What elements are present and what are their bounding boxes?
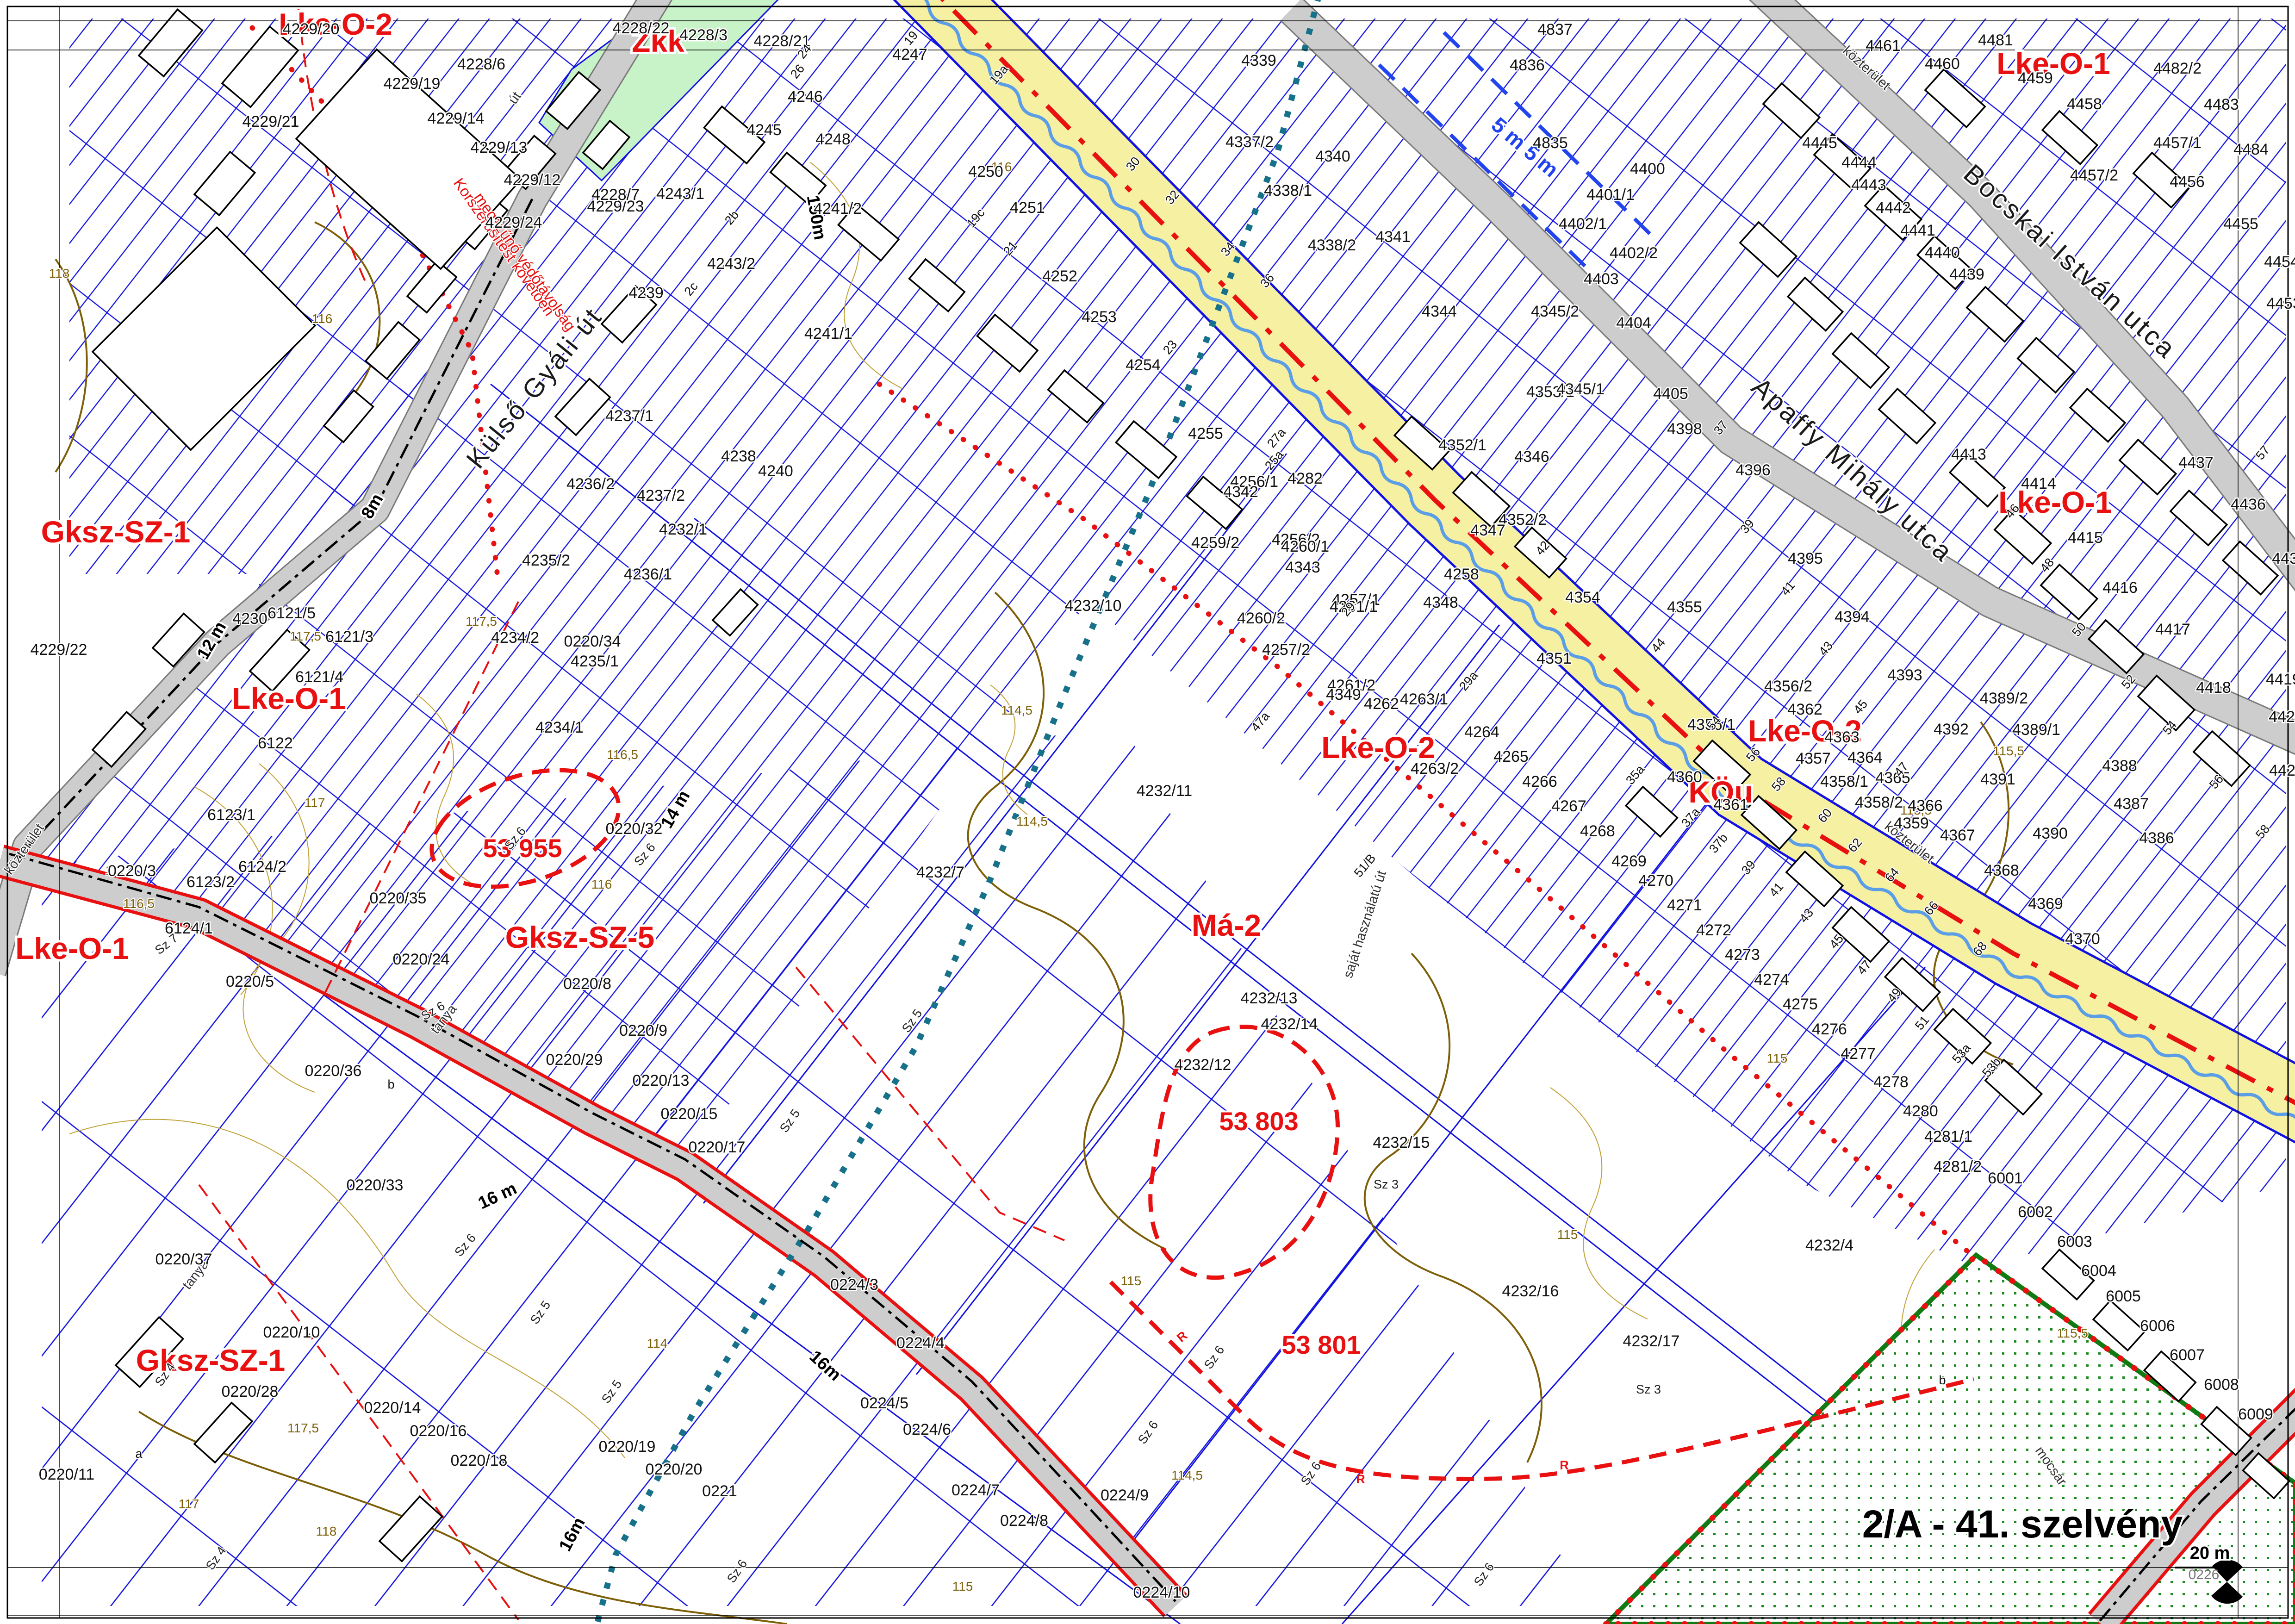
map-label: 116 xyxy=(591,877,612,891)
map-label: 4232/16 xyxy=(1502,1282,1559,1300)
map-label: 6006 xyxy=(2140,1317,2175,1335)
map-label: b xyxy=(1939,1373,1946,1387)
map-label: 0220/14 xyxy=(364,1399,421,1417)
map-label: 4282 xyxy=(1287,470,1323,487)
map-label: 0224/6 xyxy=(903,1421,951,1438)
map-label: 4343 xyxy=(1285,559,1320,576)
map-label: 4349 xyxy=(1326,686,1361,703)
map-label: 0224/9 xyxy=(1101,1487,1149,1504)
map-label: 4338/1 xyxy=(1264,182,1312,199)
map-label: 4419 xyxy=(2266,671,2295,688)
map-label: 4239 xyxy=(628,284,664,302)
map-label: 4405 xyxy=(1653,385,1688,403)
map-label: 0224/8 xyxy=(1000,1512,1048,1530)
map-label: 4439 xyxy=(1949,266,1984,283)
map-label: 4398 xyxy=(1667,420,1702,438)
map-label: R xyxy=(1560,1458,1569,1472)
map-label: 4361 xyxy=(1713,796,1748,814)
map-label: 117,5 xyxy=(290,629,321,643)
map-label: 4234/2 xyxy=(491,629,539,647)
map-label: 4228/22 xyxy=(613,19,670,37)
map-label: 4370 xyxy=(2065,930,2100,948)
map-label: 118 xyxy=(49,266,70,280)
map-label: 4460 xyxy=(1925,55,1960,73)
map-label: 4281/2 xyxy=(1934,1158,1982,1176)
map-label: Sz 3 xyxy=(1374,1177,1399,1191)
map-label: 6002 xyxy=(2018,1203,2053,1221)
map-label: 4352/1 xyxy=(1438,436,1486,454)
map-label: 4484 xyxy=(2233,141,2269,158)
map-label: 4836 xyxy=(1510,56,1545,74)
map-label: Gksz-SZ-5 xyxy=(505,920,655,954)
map-label: 0220/11 xyxy=(39,1466,94,1483)
map-label: 2/A - 41. szelvény xyxy=(1862,1502,2183,1546)
map-label: 4246 xyxy=(788,88,823,106)
map-label: 117 xyxy=(305,796,325,810)
map-label: 4345/2 xyxy=(1531,303,1579,320)
map-label: 4262 xyxy=(1364,695,1399,713)
map-label: 4241/1 xyxy=(804,325,852,342)
map-label: 4482/2 xyxy=(2153,60,2202,77)
map-label: 0224/10 xyxy=(1133,1584,1190,1601)
map-label: 4278 xyxy=(1873,1073,1909,1091)
map-label: 4421 xyxy=(2269,762,2295,779)
map-label: 0220/35 xyxy=(370,890,427,907)
map-label: 4359 xyxy=(1894,815,1929,832)
map-label: 4461 xyxy=(1866,37,1901,55)
map-label: 4338/2 xyxy=(1308,236,1356,254)
map-label: 115,5 xyxy=(1993,744,2024,758)
map-label: 4235/2 xyxy=(522,552,570,569)
map-label: 6004 xyxy=(2081,1262,2116,1280)
map-label: 4455 xyxy=(2223,215,2258,233)
map-label: 4358/2 xyxy=(1855,794,1903,811)
map-label: 4835 xyxy=(1533,134,1568,152)
map-label: 4458 xyxy=(2067,95,2102,113)
map-label: 4229/21 xyxy=(243,113,299,131)
map-label: 4340 xyxy=(1315,148,1350,165)
map-label: 117,5 xyxy=(466,614,497,628)
map-label: 0220/18 xyxy=(451,1452,508,1469)
map-label: 4270 xyxy=(1638,872,1673,890)
map-label: 4232/14 xyxy=(1261,1015,1318,1033)
map-label: 6003 xyxy=(2057,1233,2092,1251)
map-label: 4354 xyxy=(1565,589,1600,606)
map-label: 4269 xyxy=(1611,852,1647,870)
map-label: 4453 xyxy=(2266,295,2295,312)
map-label: 4483 xyxy=(2204,96,2239,113)
map-label: 6121/5 xyxy=(267,604,316,622)
map-label: 4367 xyxy=(1940,827,1975,844)
map-label: 4355 xyxy=(1667,598,1702,616)
map-label: 4251 xyxy=(1010,199,1045,217)
map-label: 4280 xyxy=(1903,1102,1938,1120)
map-label: 53 801 xyxy=(1281,1330,1361,1359)
map-label: 6123/1 xyxy=(207,806,255,824)
map-label: 4229/22 xyxy=(31,641,87,659)
map-label: 4417 xyxy=(2155,621,2190,638)
map-label: 0220/24 xyxy=(393,951,450,968)
map-label: 4441 xyxy=(1900,222,1935,239)
map-label: 4232/1 xyxy=(659,521,707,538)
map-label: 4229/19 xyxy=(384,75,441,93)
map-label: 117 xyxy=(179,1497,199,1511)
map-label: 4400 xyxy=(1630,160,1665,178)
map-label: 4459 xyxy=(2018,69,2053,87)
map-label: 4271 xyxy=(1667,896,1702,914)
map-label: 4263/1 xyxy=(1400,691,1448,708)
map-label: 6121/4 xyxy=(295,668,343,686)
map-label: 0220/15 xyxy=(661,1105,718,1123)
map-label: 4230 xyxy=(232,610,267,628)
map-label: 4243/2 xyxy=(707,255,755,273)
map-label: Lke-O-2 xyxy=(1321,730,1435,765)
map-label: 4454 xyxy=(2264,253,2295,271)
map-label: R xyxy=(1356,1472,1365,1486)
map-label: Lke-O-1 xyxy=(15,931,129,965)
map-label: 4356/2 xyxy=(1764,678,1812,695)
map-label: 4440 xyxy=(1925,244,1960,261)
map-label: 4394 xyxy=(1835,608,1870,626)
map-label: 4414 xyxy=(2021,475,2056,492)
map-label: 4229/12 xyxy=(504,171,561,189)
contour-line xyxy=(1550,1088,1648,1319)
map-label: Lke-O-1 xyxy=(232,681,346,716)
map-label: 4273 xyxy=(1725,946,1760,964)
map-label: 0220/3 xyxy=(108,862,156,880)
map-label: 6009 xyxy=(2238,1406,2273,1423)
map-label: 4348 xyxy=(1423,594,1458,611)
map-label: 4276 xyxy=(1812,1020,1847,1038)
map-label: 117,5 xyxy=(287,1421,319,1435)
map-label: 4339 xyxy=(1241,52,1276,69)
map-label: 4415 xyxy=(2068,529,2103,547)
map-label: 6008 xyxy=(2204,1376,2239,1394)
map-label: 115 xyxy=(952,1579,973,1593)
map-label: 0220/33 xyxy=(347,1176,404,1194)
map-label: 0224/3 xyxy=(830,1276,878,1294)
map-label: 4238 xyxy=(721,448,756,465)
map-label: 4444 xyxy=(1841,154,1877,171)
map-label: 4351 xyxy=(1536,650,1572,667)
map-label: 115,5 xyxy=(2057,1326,2088,1340)
map-label: 118 xyxy=(316,1524,337,1538)
map-label: 114 xyxy=(647,1336,668,1350)
map-label: 4245 xyxy=(746,121,782,139)
zoning-map: Lke-O-2ZkkLke-O-1Gksz-SZ-1Lke-O-1Lke-O-1… xyxy=(0,0,2295,1624)
map-label: 4241/2 xyxy=(814,200,862,218)
map-label: 4234/1 xyxy=(535,719,584,736)
map-label: 4243/1 xyxy=(656,185,704,203)
map-label: 115 xyxy=(1767,1051,1788,1065)
map-label: 4260/1 xyxy=(1281,538,1329,555)
map-label: 4259/2 xyxy=(1191,534,1239,552)
map-label: 4229/13 xyxy=(471,139,528,156)
map-label: 6122 xyxy=(258,734,293,752)
map-label: 0220/16 xyxy=(410,1422,467,1440)
map-label: 4255 xyxy=(1188,425,1223,442)
map-label: 4404 xyxy=(1616,314,1651,332)
map-label: 6121/3 xyxy=(325,628,373,646)
map-label: 115 xyxy=(1557,1227,1578,1242)
map-label: 114,5 xyxy=(1171,1468,1203,1482)
map-label: 4837 xyxy=(1537,21,1573,38)
map-label: Gksz-SZ-1 xyxy=(41,515,191,549)
map-label: 4236/1 xyxy=(624,566,672,583)
map-label: 4418 xyxy=(2196,679,2231,697)
map-label: 4357 xyxy=(1796,750,1831,767)
map-label: 4436 xyxy=(2231,496,2266,513)
map-label: 4435 xyxy=(2272,550,2295,567)
map-label: 114,5 xyxy=(1001,703,1032,717)
map-label: 4346 xyxy=(1514,448,1549,466)
map-label: 4232/17 xyxy=(1623,1332,1680,1350)
map-label: 4369 xyxy=(2028,895,2063,913)
map-label: 6001 xyxy=(1988,1170,2023,1187)
map-label: 4228/6 xyxy=(457,56,505,73)
map-label: 0220/20 xyxy=(646,1461,703,1478)
map-label: 4416 xyxy=(2102,579,2138,597)
map-label: 4235/1 xyxy=(571,653,619,670)
map-label: 0220/28 xyxy=(222,1383,279,1400)
map-label: 4253 xyxy=(1082,308,1117,326)
map-label: 0220/29 xyxy=(546,1051,603,1069)
map-label: 4237/2 xyxy=(637,487,685,504)
map-label: 0220/32 xyxy=(606,820,663,838)
map-label: 116 xyxy=(312,311,333,326)
map-label: 4360 xyxy=(1667,768,1702,786)
map-label: 4248 xyxy=(815,131,851,148)
map-label: 4413 xyxy=(1951,446,1986,463)
map-label: 0220/10 xyxy=(263,1324,320,1341)
map-label: 4396 xyxy=(1735,461,1771,479)
map-label: 4395 xyxy=(1788,550,1823,567)
map-label: 4389/2 xyxy=(1980,690,2028,707)
map-label: 116,5 xyxy=(607,747,638,762)
map-label: Lke-O-1 xyxy=(1996,46,2110,81)
map-label: 4272 xyxy=(1696,921,1731,939)
map-label: 4366 xyxy=(1908,797,1943,815)
map-label: 4228/7 xyxy=(591,186,640,204)
map-label: 4228/3 xyxy=(679,26,728,44)
map-label: 4443 xyxy=(1851,176,1886,194)
map-label: 4388 xyxy=(2102,757,2137,775)
map-label: 4392 xyxy=(1934,721,1969,738)
map-label: 4266 xyxy=(1522,773,1557,790)
map-label: 4337/2 xyxy=(1225,133,1274,151)
map-label: 20 m xyxy=(2190,1543,2230,1563)
map-label: 4260/2 xyxy=(1237,610,1285,627)
map-label: 0220/37 xyxy=(155,1251,212,1268)
map-label: 0220/9 xyxy=(619,1022,667,1039)
map-label: 4258 xyxy=(1444,566,1479,583)
map-label: 4437 xyxy=(2178,454,2214,472)
map-label: 4250 xyxy=(968,163,1003,180)
map-label: 4364 xyxy=(1847,749,1883,766)
map-label: 4481 xyxy=(1978,31,2013,49)
map-label: 4393 xyxy=(1887,666,1922,684)
map-label: 4229/24 xyxy=(485,214,542,231)
map-label: 4387 xyxy=(2114,795,2149,813)
map-label: 4247 xyxy=(892,46,927,63)
map-label: 4341 xyxy=(1375,228,1411,246)
map-label: 4274 xyxy=(1754,971,1789,989)
map-label: Má-2 xyxy=(1192,908,1261,942)
map-label: 115 xyxy=(1121,1274,1142,1288)
map-label: 0220/8 xyxy=(563,975,611,993)
map-label: Sz 3 xyxy=(1636,1382,1661,1396)
map-label: 0220/36 xyxy=(305,1062,362,1080)
map-label: 4352/2 xyxy=(1499,511,1547,529)
map-label: 4277 xyxy=(1841,1045,1876,1063)
map-label: 4402/2 xyxy=(1610,244,1658,262)
map-label: 4232/15 xyxy=(1373,1134,1430,1151)
map-label: 4229/14 xyxy=(428,110,485,127)
map-label: 0224/4 xyxy=(896,1334,945,1352)
map-label: 4391 xyxy=(1980,771,2015,788)
map-label: 4232/11 xyxy=(1137,782,1192,800)
map-label: 0221 xyxy=(702,1482,737,1500)
map-label: 114,5 xyxy=(1016,814,1048,828)
map-label: 4252 xyxy=(1042,268,1077,285)
map-label: 53 803 xyxy=(1219,1107,1298,1136)
map-label: 4390 xyxy=(2033,825,2068,842)
map-label: 4347 xyxy=(1470,522,1505,539)
map-label: 4232/7 xyxy=(916,864,964,881)
map-label: 4456 xyxy=(2170,173,2205,191)
map-label: 6005 xyxy=(2106,1288,2141,1305)
map-label: 4257/2 xyxy=(1262,641,1310,659)
map-label: 4420 xyxy=(2269,708,2295,726)
map-label: 4403 xyxy=(1584,270,1619,288)
map-label: 0224/5 xyxy=(860,1394,908,1412)
map-label: 4442 xyxy=(1876,199,1911,217)
map-label: 4363 xyxy=(1824,728,1860,746)
map-label: 4344 xyxy=(1422,303,1457,320)
map-label: 4389/1 xyxy=(2012,721,2060,739)
map-label: 4263/2 xyxy=(1411,760,1459,778)
map-label: 6123/2 xyxy=(187,873,235,891)
map-label: 4237/1 xyxy=(605,407,653,425)
map-label: 4275 xyxy=(1783,996,1818,1013)
map-label: 4232/10 xyxy=(1065,597,1122,615)
map-label: 4401/1 xyxy=(1586,186,1635,204)
map-label: 4342 xyxy=(1223,483,1258,501)
map-label: 4457/1 xyxy=(2153,134,2202,152)
map-label: 4368 xyxy=(1984,862,2019,879)
map-label: saját használatú út xyxy=(1341,869,1389,980)
map-label: 0220/17 xyxy=(689,1139,746,1156)
map-label: 4268 xyxy=(1580,822,1615,840)
map-label: 4232/12 xyxy=(1175,1056,1231,1074)
map-label: 0220/13 xyxy=(633,1072,690,1089)
map-label: a xyxy=(135,1447,143,1461)
zoning-map-page: Lke-O-2ZkkLke-O-1Gksz-SZ-1Lke-O-1Lke-O-1… xyxy=(0,0,2295,1624)
map-label: 4402/1 xyxy=(1559,215,1607,233)
map-label: 0220/34 xyxy=(564,633,621,650)
map-label: 4232/13 xyxy=(1241,989,1298,1007)
map-label: 4358/1 xyxy=(1820,773,1868,790)
map-label: 0220/5 xyxy=(226,973,274,990)
map-label: 4345/1 xyxy=(1556,380,1605,398)
map-label: 0224/7 xyxy=(952,1481,1000,1499)
map-label: 4281/1 xyxy=(1924,1128,1972,1145)
map-label: 6007 xyxy=(2170,1346,2205,1364)
map-label: 4445 xyxy=(1802,134,1837,152)
map-label: 4267 xyxy=(1551,797,1586,815)
map-label: 0220/19 xyxy=(599,1438,656,1456)
map-label: 4236/2 xyxy=(566,475,615,493)
map-label: 4386 xyxy=(2139,829,2174,847)
map-label: b xyxy=(387,1077,394,1091)
map-label: 4265 xyxy=(1493,748,1529,765)
map-label: 4457/2 xyxy=(2070,167,2118,184)
map-label: 4229/20 xyxy=(283,20,340,38)
map-label: 6124/2 xyxy=(238,858,286,876)
map-label: 4362 xyxy=(1787,701,1822,718)
map-label: 4264 xyxy=(1464,723,1499,741)
map-label: 4240 xyxy=(758,462,793,480)
map-label: 4254 xyxy=(1126,356,1161,374)
map-label: 0226 xyxy=(2189,1567,2220,1582)
map-label: 116,5 xyxy=(123,896,155,911)
map-label: 4232/4 xyxy=(1805,1237,1853,1254)
